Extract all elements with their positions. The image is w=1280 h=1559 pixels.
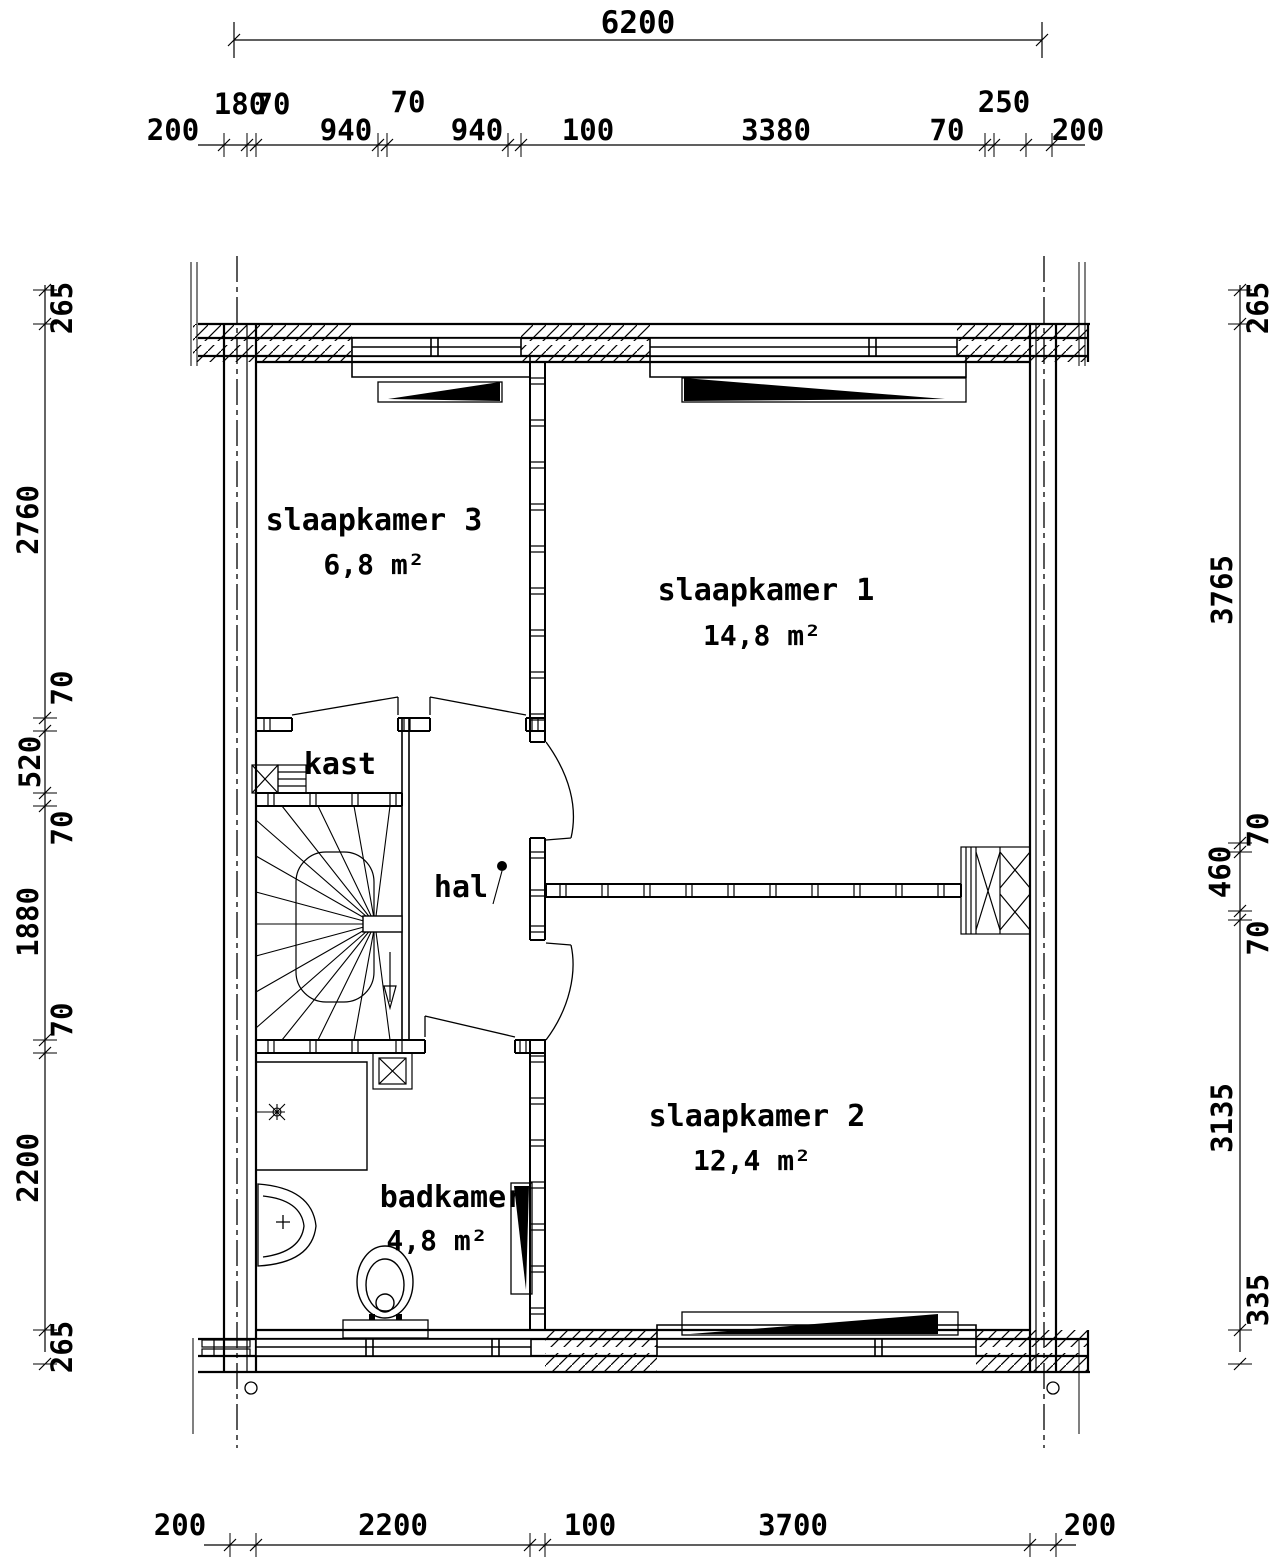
radiator-bedroom2 <box>682 1312 958 1335</box>
dim-top-10: 200 <box>1052 113 1104 147</box>
dim-right-0: 265 <box>1241 282 1275 334</box>
radiator-bedroom3 <box>378 382 502 402</box>
stairs <box>256 806 507 1040</box>
dim-top-9: 250 <box>978 85 1030 119</box>
drain-icon <box>256 1104 285 1120</box>
duct-closet <box>252 765 306 793</box>
room-label-bedroom1: slaapkamer 1 <box>658 573 875 608</box>
washbasin <box>258 1184 316 1266</box>
room-label-bedroom2: slaapkamer 2 <box>649 1099 866 1134</box>
window-bedroom1 <box>650 338 966 377</box>
duct-bathroom <box>373 1053 412 1089</box>
dim-top-4: 70 <box>391 85 426 119</box>
grid-marker-circle-left <box>245 1382 257 1394</box>
exterior-walls <box>198 324 1090 1372</box>
dim-right-4: 70 <box>1241 921 1275 956</box>
stair-balustrade <box>402 718 409 1040</box>
dim-bottom-1: 2200 <box>358 1508 428 1542</box>
exterior-wall-hatch <box>193 324 1088 1372</box>
dim-bottom-2: 100 <box>564 1508 616 1542</box>
door-bedroom3 <box>430 697 526 715</box>
room-label-bathroom: badkamer <box>380 1180 525 1215</box>
dim-right-3: 460 <box>1203 846 1237 898</box>
dim-top-overall: 6200 <box>601 5 676 41</box>
dim-left-4: 70 <box>45 811 79 846</box>
dim-left-7: 2200 <box>11 1133 45 1203</box>
dim-bottom-4: 200 <box>1064 1508 1116 1542</box>
dim-right-2: 70 <box>1241 813 1275 848</box>
partition-closet-top <box>256 718 546 731</box>
window-bathroom <box>256 1339 531 1356</box>
dim-right-6: 335 <box>1241 1274 1275 1326</box>
dim-bottom-3: 3700 <box>758 1508 828 1542</box>
duct-bedrooms <box>961 847 1030 934</box>
door-bedroom2 <box>546 943 573 1040</box>
area-label-bedroom2: 12,4 m² <box>693 1144 811 1177</box>
dim-top-5: 940 <box>451 113 503 147</box>
dim-left-1: 2760 <box>11 485 45 555</box>
room-label-closet: kast <box>304 747 376 782</box>
dim-left-5: 1880 <box>11 887 45 957</box>
floor-plan-page: 6200 200 180 70 940 70 940 100 3380 70 2… <box>0 0 1280 1559</box>
dim-top-2: 70 <box>256 87 291 121</box>
area-label-bedroom3: 6,8 m² <box>323 548 424 581</box>
dim-left-3: 520 <box>13 736 47 788</box>
dimension-lines <box>33 22 1252 1557</box>
dim-left-6: 70 <box>45 1003 79 1038</box>
door-bathroom <box>425 1016 515 1037</box>
window-bedroom3 <box>352 338 530 377</box>
wall-leaf-lines <box>202 324 1036 1372</box>
dim-top-6: 100 <box>562 113 614 147</box>
area-label-bathroom: 4,8 m² <box>386 1224 487 1257</box>
dim-right-1: 3765 <box>1205 555 1239 625</box>
dim-left-0: 265 <box>45 282 79 334</box>
room-labels: slaapkamer 3 6,8 m² slaapkamer 1 14,8 m²… <box>266 503 875 1257</box>
partition-hall-bottom <box>256 1040 546 1053</box>
stair-post-dot <box>497 861 507 871</box>
dim-left-8: 265 <box>45 1321 79 1373</box>
partition-closet-bottom <box>256 793 402 806</box>
windows <box>256 338 976 1356</box>
dim-bottom-0: 200 <box>154 1508 206 1542</box>
dim-top-3: 940 <box>320 113 372 147</box>
stair-newel <box>363 916 402 932</box>
area-label-bedroom1: 14,8 m² <box>703 619 821 652</box>
stair-direction-arrow <box>384 952 396 1008</box>
toilet-icon <box>343 1246 428 1338</box>
room-label-bedroom3: slaapkamer 3 <box>266 503 483 538</box>
dim-right-5: 3135 <box>1205 1083 1239 1153</box>
shower <box>256 1062 367 1170</box>
radiator-bedroom1 <box>682 378 966 402</box>
dim-top-8: 70 <box>930 113 965 147</box>
dim-top-0: 200 <box>147 113 199 147</box>
dim-top-7: 3380 <box>741 113 811 147</box>
dim-left-2: 70 <box>45 671 79 706</box>
door-closet <box>292 697 398 715</box>
floor-plan-svg: 6200 200 180 70 940 70 940 100 3380 70 2… <box>0 0 1280 1559</box>
dimension-texts: 6200 200 180 70 940 70 940 100 3380 70 2… <box>11 5 1275 1542</box>
door-bedroom1 <box>546 742 573 840</box>
room-label-hall: hal <box>434 870 488 905</box>
grid-marker-circle-right <box>1047 1382 1059 1394</box>
